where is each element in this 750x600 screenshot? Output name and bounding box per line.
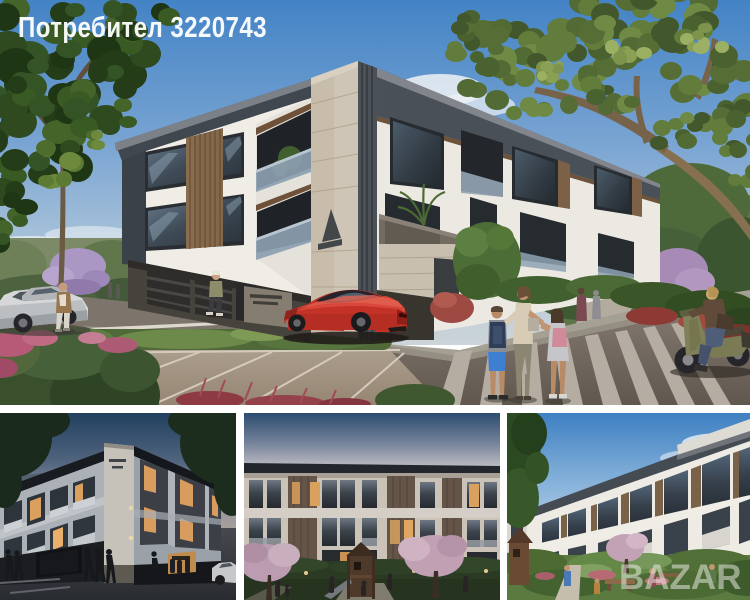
- svg-text:BAZAR: BAZAR: [619, 558, 741, 597]
